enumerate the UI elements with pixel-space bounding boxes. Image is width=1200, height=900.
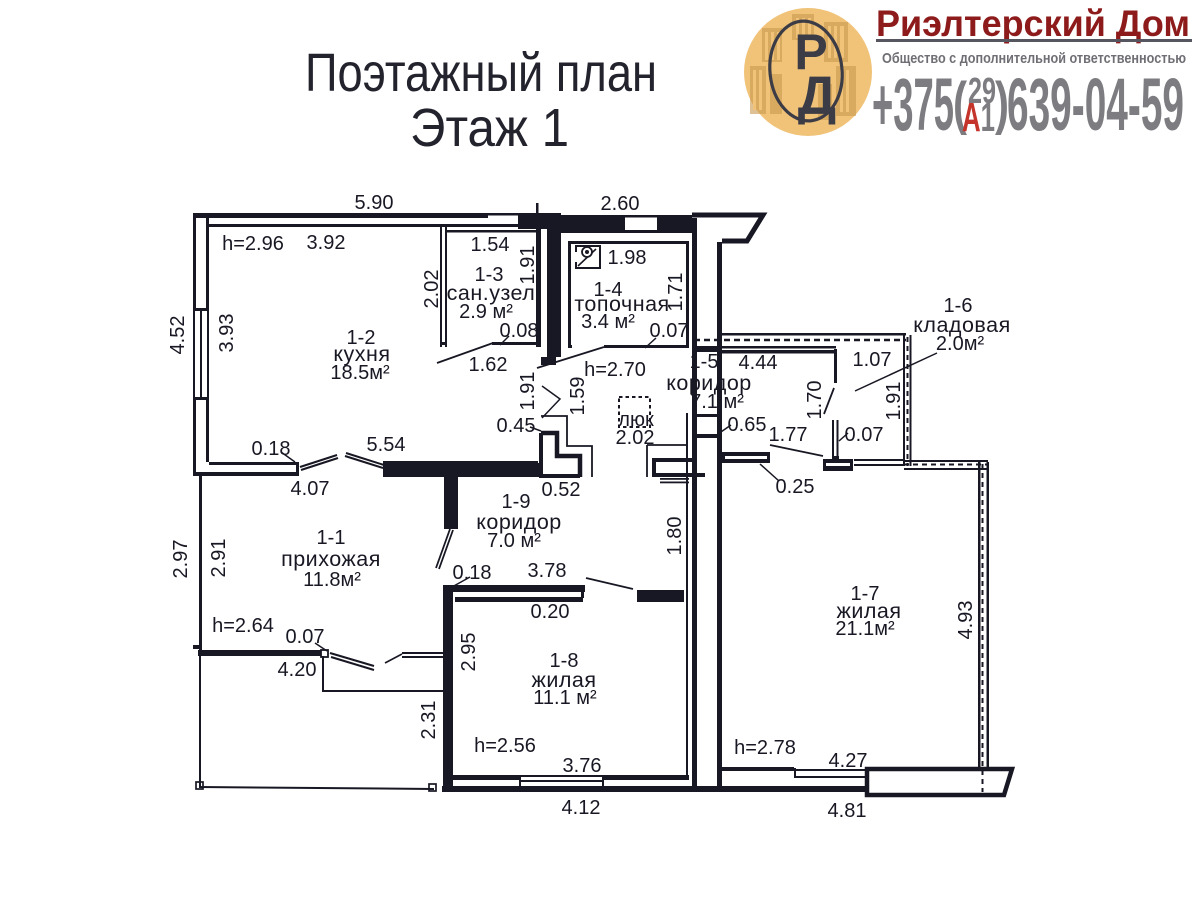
svg-text:2.02: 2.02	[421, 270, 443, 309]
svg-text:h=2.96: h=2.96	[222, 233, 284, 255]
svg-text:3.76: 3.76	[563, 755, 602, 777]
svg-text:1.70: 1.70	[804, 381, 826, 420]
svg-text:7.1 м²: 7.1 м²	[690, 391, 744, 413]
svg-text:4.12: 4.12	[562, 797, 601, 819]
svg-text:прихожая: прихожая	[281, 547, 381, 571]
svg-text:+375: +375	[872, 63, 954, 146]
svg-text:0.08: 0.08	[500, 320, 539, 342]
svg-text:0.18: 0.18	[453, 562, 492, 584]
svg-text:0.65: 0.65	[728, 414, 767, 436]
svg-text:1.80: 1.80	[664, 517, 686, 556]
svg-text:3.4 м²: 3.4 м²	[581, 311, 635, 333]
svg-text:А1: А1	[962, 94, 995, 140]
svg-text:0.20: 0.20	[531, 601, 570, 623]
svg-text:1-1: 1-1	[317, 527, 346, 549]
svg-text:2.60: 2.60	[601, 193, 640, 215]
svg-text:5.90: 5.90	[355, 192, 394, 214]
svg-text:h=2.70: h=2.70	[584, 359, 646, 381]
svg-text:2.91: 2.91	[208, 539, 230, 578]
svg-text:1.91: 1.91	[517, 246, 539, 285]
svg-text:0.25: 0.25	[776, 476, 815, 498]
svg-text:11.8м²: 11.8м²	[303, 569, 361, 591]
svg-text:0.07: 0.07	[845, 424, 884, 446]
svg-text:h=2.56: h=2.56	[474, 735, 536, 757]
svg-text:1.62: 1.62	[469, 354, 508, 376]
svg-text:4.27: 4.27	[829, 750, 868, 772]
svg-text:2.9 м²: 2.9 м²	[459, 301, 513, 323]
svg-text:7.0 м²: 7.0 м²	[487, 530, 541, 552]
svg-text:Риэлтерский Дом: Риэлтерский Дом	[876, 3, 1190, 44]
svg-text:1-5: 1-5	[690, 351, 719, 373]
svg-text:0.18: 0.18	[252, 438, 291, 460]
svg-text:h=2.64: h=2.64	[212, 615, 274, 637]
svg-text:1.77: 1.77	[769, 424, 808, 446]
svg-text:Этаж 1: Этаж 1	[410, 98, 569, 158]
svg-text:2.02: 2.02	[616, 427, 655, 449]
svg-text:2.31: 2.31	[418, 701, 440, 740]
svg-text:Поэтажный план: Поэтажный план	[305, 43, 657, 103]
svg-text:0.52: 0.52	[542, 479, 581, 501]
svg-text:18.5м²: 18.5м²	[330, 362, 390, 384]
svg-text:2.97: 2.97	[170, 540, 192, 579]
svg-text:1.54: 1.54	[471, 234, 510, 256]
svg-text:4.52: 4.52	[167, 316, 189, 355]
svg-text:4.20: 4.20	[278, 659, 317, 681]
svg-text:h=2.78: h=2.78	[734, 737, 796, 759]
svg-text:0.45: 0.45	[497, 415, 536, 437]
svg-text:2.95: 2.95	[458, 633, 480, 672]
svg-text:1.91: 1.91	[883, 382, 905, 421]
svg-text:4.07: 4.07	[291, 478, 330, 500]
svg-text:0.07: 0.07	[650, 320, 689, 342]
svg-text:3.92: 3.92	[307, 232, 346, 254]
svg-text:3.78: 3.78	[528, 560, 567, 582]
svg-text:Д: Д	[798, 66, 836, 126]
svg-text:5.54: 5.54	[367, 434, 406, 456]
svg-text:4.93: 4.93	[955, 601, 977, 640]
svg-text:639-04-59: 639-04-59	[1007, 63, 1184, 146]
svg-text:4.81: 4.81	[828, 800, 867, 822]
svg-text:21.1м²: 21.1м²	[835, 618, 895, 640]
svg-text:1.91: 1.91	[517, 372, 539, 411]
svg-text:3.93: 3.93	[216, 314, 238, 353]
svg-text:1.59: 1.59	[567, 377, 589, 416]
svg-text:11.1 м²: 11.1 м²	[533, 687, 597, 709]
svg-text:1.07: 1.07	[853, 349, 892, 371]
svg-text:2.0м²: 2.0м²	[936, 333, 985, 355]
svg-text:1.98: 1.98	[608, 247, 647, 269]
svg-text:0.07: 0.07	[286, 626, 325, 648]
